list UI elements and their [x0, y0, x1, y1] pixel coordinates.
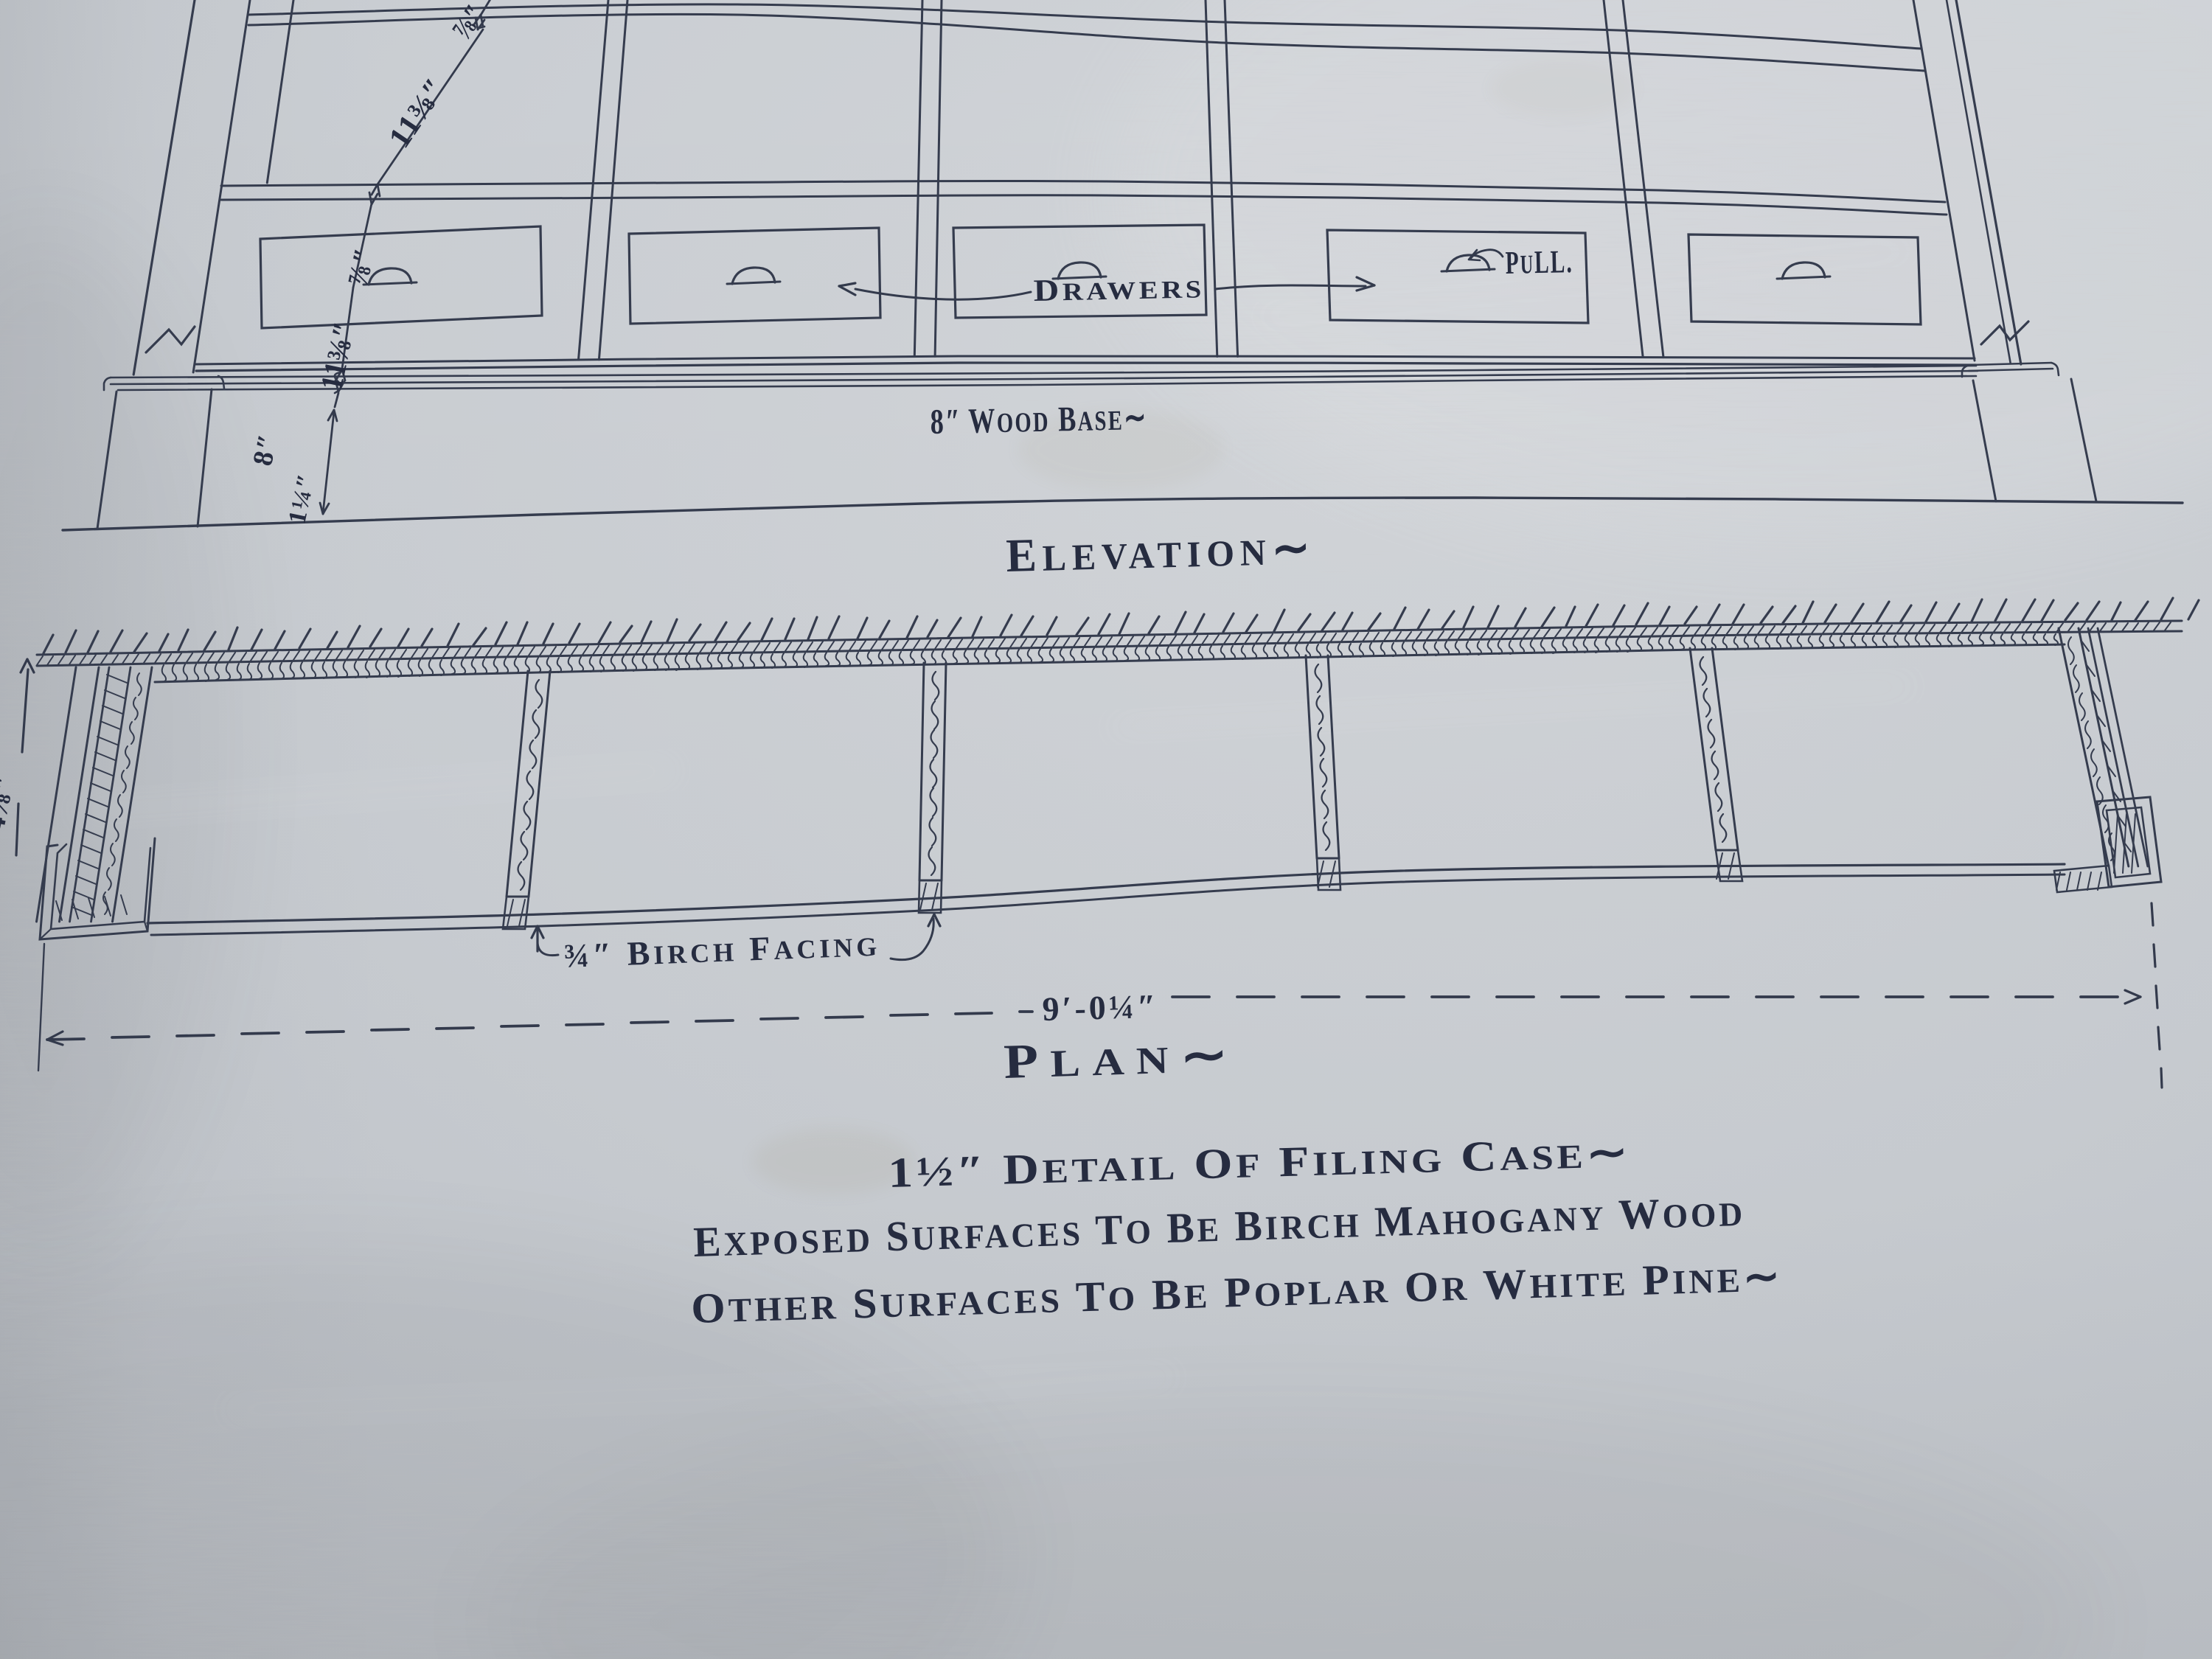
- svg-text:9′-0¼″: 9′-0¼″: [1042, 987, 1159, 1028]
- svg-text:8″: 8″: [247, 431, 284, 469]
- svg-text:PULL.: PULL.: [1505, 243, 1573, 281]
